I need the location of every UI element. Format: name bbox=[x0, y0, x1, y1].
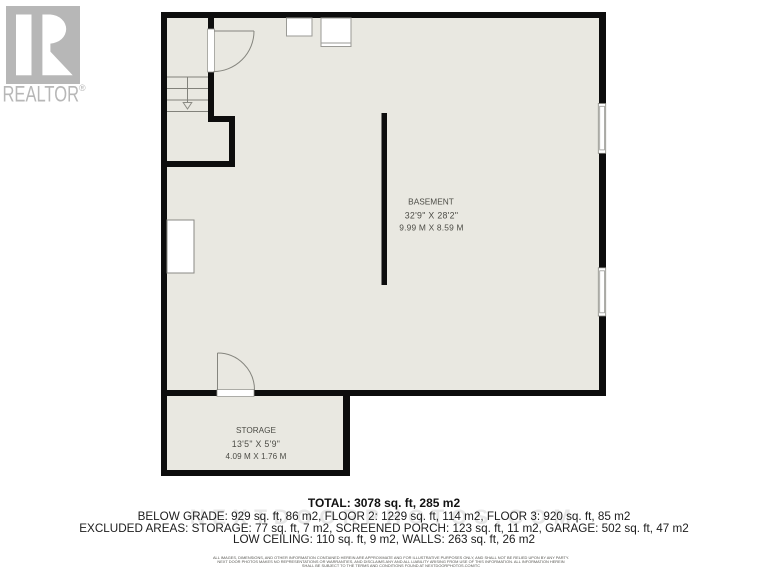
svg-text:STORAGE: STORAGE bbox=[236, 426, 276, 435]
svg-text:4.09 M X 1.76 M: 4.09 M X 1.76 M bbox=[226, 452, 287, 461]
svg-text:9.99 M X 8.59 M: 9.99 M X 8.59 M bbox=[399, 223, 463, 233]
svg-text:32'9" X 28'2": 32'9" X 28'2" bbox=[405, 210, 459, 220]
svg-text:13'5" X 5'9": 13'5" X 5'9" bbox=[232, 439, 280, 449]
svg-text:BASEMENT: BASEMENT bbox=[408, 197, 454, 207]
